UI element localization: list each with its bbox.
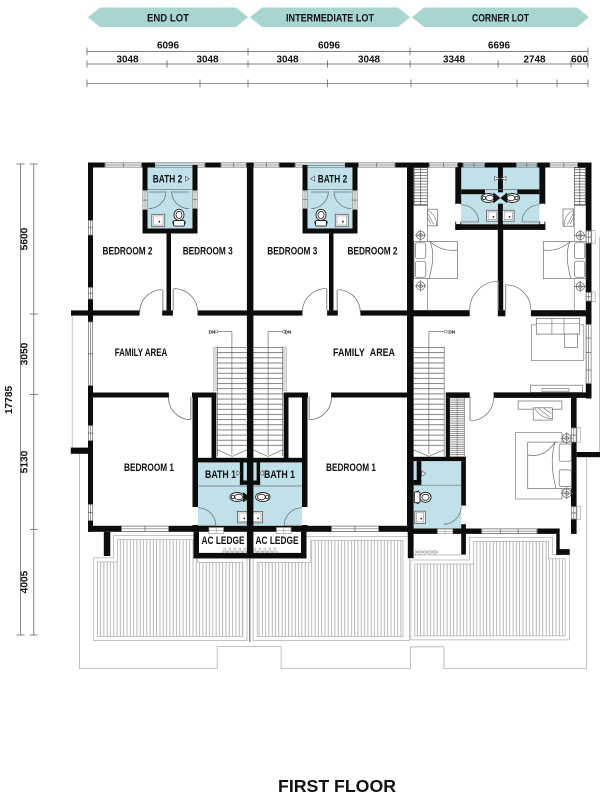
svg-text:3348: 3348 [443, 54, 465, 65]
svg-text:CORNER LOT: CORNER LOT [472, 13, 529, 25]
svg-text:BEDROOM 1: BEDROOM 1 [124, 462, 174, 474]
svg-text:END LOT: END LOT [147, 13, 189, 25]
svg-text:DN: DN [448, 329, 455, 335]
svg-text:3050: 3050 [19, 342, 30, 365]
svg-text:600: 600 [571, 54, 588, 65]
svg-text:3048: 3048 [277, 54, 299, 65]
svg-text:6096: 6096 [157, 40, 179, 51]
svg-text:AC LEDGE: AC LEDGE [202, 535, 245, 547]
svg-text:BATH 2: BATH 2 [153, 173, 183, 185]
svg-text:FAMILY AREA: FAMILY AREA [333, 347, 395, 359]
svg-text:BEDROOM 2: BEDROOM 2 [103, 246, 153, 258]
svg-text:FAMILY AREA: FAMILY AREA [115, 347, 168, 359]
svg-text:BEDROOM 3: BEDROOM 3 [183, 246, 233, 258]
svg-text:5600: 5600 [19, 227, 30, 250]
svg-text:DN: DN [285, 329, 292, 335]
svg-text:BEDROOM 2: BEDROOM 2 [348, 246, 398, 258]
svg-text:AC LEDGE: AC LEDGE [256, 535, 299, 547]
svg-text:6696: 6696 [488, 40, 510, 51]
svg-text:BATH 1: BATH 1 [205, 469, 236, 481]
svg-text:DN: DN [209, 329, 216, 335]
svg-text:17785: 17785 [4, 386, 15, 415]
svg-text:3048: 3048 [358, 54, 380, 65]
svg-text:BEDROOM 1: BEDROOM 1 [326, 462, 376, 474]
svg-text:5130: 5130 [19, 450, 30, 473]
svg-text:INTERMEDIATE LOT: INTERMEDIATE LOT [286, 13, 374, 25]
svg-text:BEDROOM 3: BEDROOM 3 [267, 246, 317, 258]
svg-text:4005: 4005 [19, 570, 30, 593]
svg-text:2748: 2748 [524, 54, 546, 65]
svg-text:BATH 1: BATH 1 [264, 469, 295, 481]
svg-text:FIRST FLOOR: FIRST FLOOR [278, 776, 396, 796]
svg-text:3048: 3048 [197, 54, 219, 65]
svg-text:6096: 6096 [318, 40, 340, 51]
svg-text:BATH 2: BATH 2 [318, 173, 348, 185]
svg-text:3048: 3048 [117, 54, 139, 65]
